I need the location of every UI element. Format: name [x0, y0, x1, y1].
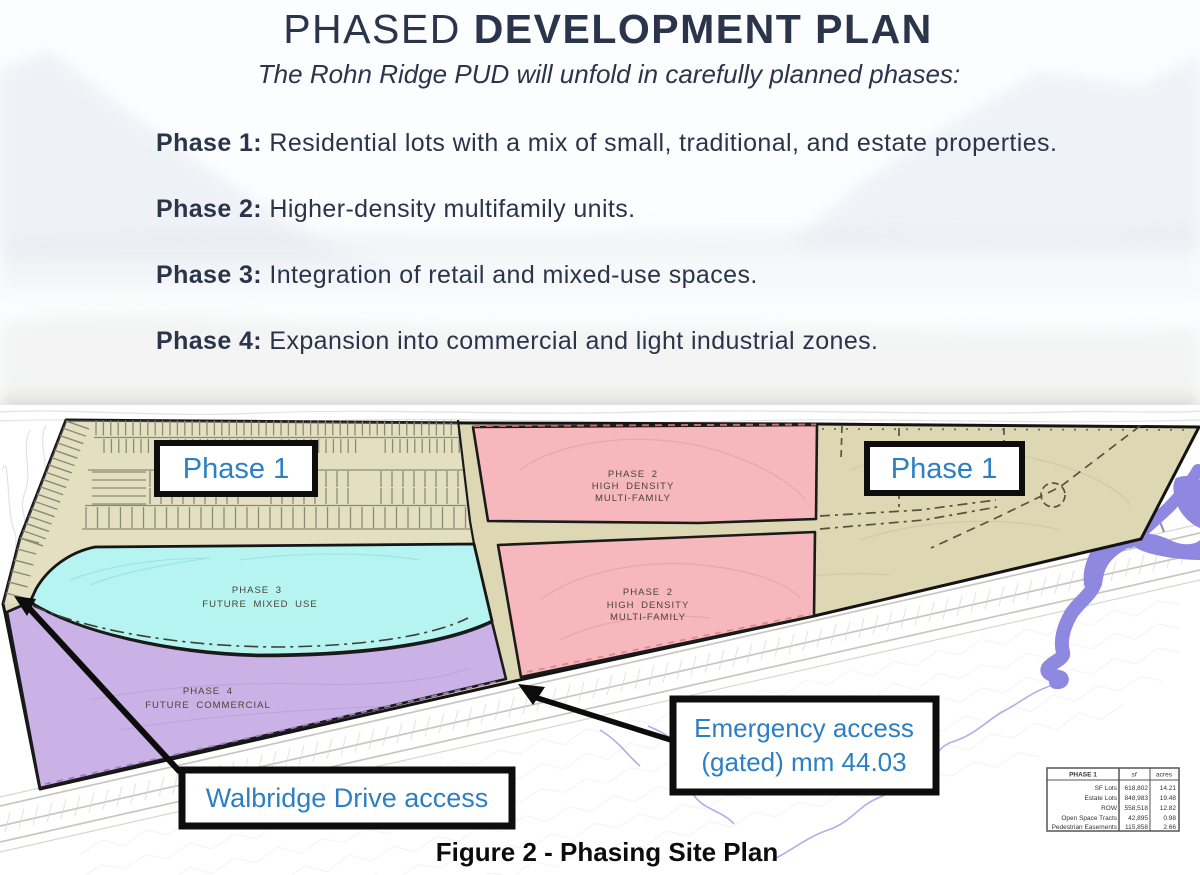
- svg-text:618,802: 618,802: [1125, 785, 1149, 792]
- svg-text:Emergency access: Emergency access: [694, 713, 914, 743]
- svg-text:HIGH DENSITY: HIGH DENSITY: [607, 600, 690, 611]
- svg-text:FUTURE MIXED USE: FUTURE MIXED USE: [202, 599, 317, 610]
- svg-text:HIGH DENSITY: HIGH DENSITY: [592, 481, 675, 492]
- svg-text:42,895: 42,895: [1128, 815, 1148, 822]
- svg-text:MULTI-FAMILY: MULTI-FAMILY: [610, 612, 686, 623]
- svg-text:Open Space Tracts: Open Space Tracts: [1061, 815, 1117, 822]
- svg-text:Pedestrian Easements: Pedestrian Easements: [1052, 824, 1118, 831]
- svg-text:(gated) mm 44.03: (gated) mm 44.03: [701, 747, 906, 777]
- svg-text:Phase 1: Phase 1: [183, 453, 289, 485]
- svg-text:PHASE 2: PHASE 2: [623, 587, 673, 598]
- svg-text:2.66: 2.66: [1163, 824, 1176, 831]
- svg-text:MULTI-FAMILY: MULTI-FAMILY: [595, 493, 671, 504]
- svg-text:FUTURE COMMERCIAL: FUTURE COMMERCIAL: [145, 700, 271, 711]
- svg-text:acres: acres: [1156, 772, 1173, 779]
- svg-text:0.98: 0.98: [1163, 815, 1176, 822]
- svg-text:14.21: 14.21: [1160, 785, 1177, 792]
- svg-text:ROW: ROW: [1101, 805, 1118, 812]
- svg-text:Phase 1: Phase 1: [891, 453, 997, 485]
- svg-text:Walbridge Drive access: Walbridge Drive access: [206, 783, 489, 813]
- svg-text:558,518: 558,518: [1125, 805, 1149, 812]
- svg-text:848,983: 848,983: [1125, 795, 1149, 802]
- svg-text:PHASE 3: PHASE 3: [232, 585, 282, 596]
- svg-text:PHASE 1: PHASE 1: [1069, 772, 1097, 779]
- svg-text:19.48: 19.48: [1160, 795, 1177, 802]
- svg-text:SF Lots: SF Lots: [1095, 785, 1118, 792]
- svg-text:115,858: 115,858: [1125, 824, 1148, 831]
- svg-text:PHASE 2: PHASE 2: [608, 469, 658, 480]
- svg-text:Estate Lots: Estate Lots: [1084, 795, 1117, 802]
- svg-text:12.82: 12.82: [1160, 805, 1177, 812]
- svg-text:PHASE 4: PHASE 4: [183, 686, 233, 697]
